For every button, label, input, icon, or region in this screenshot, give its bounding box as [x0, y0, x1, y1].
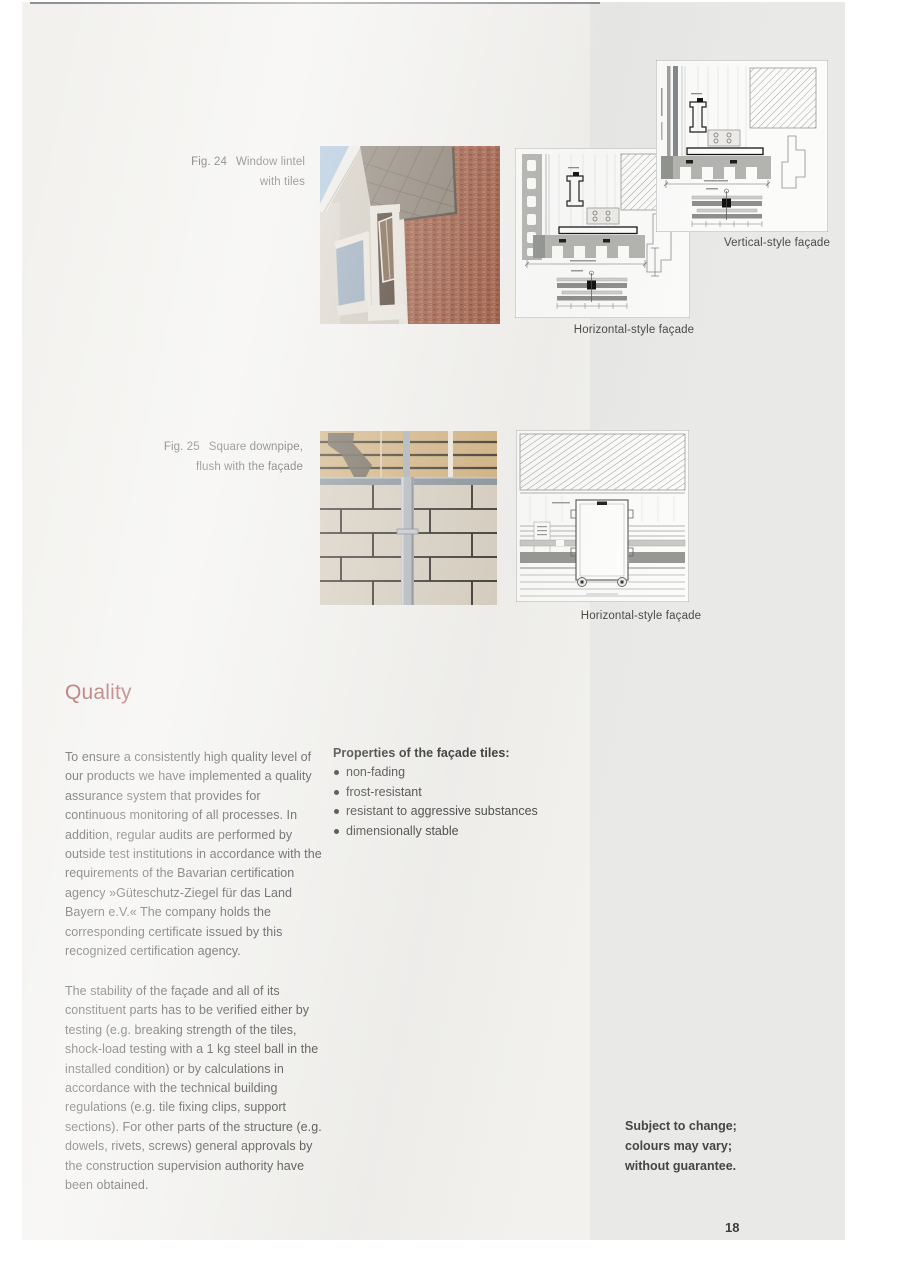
property-label: frost-resistant: [346, 785, 422, 799]
disclaimer-line1: Subject to change;: [625, 1116, 737, 1136]
fig24-caption: Fig. 24Window lintel with tiles: [142, 152, 305, 192]
list-item: non-fading: [333, 763, 573, 782]
fig24-caption-line2: with tiles: [260, 176, 305, 188]
quality-paragraph-2: The stability of the façade and all of i…: [65, 982, 325, 1195]
fig24-caption-line1: Window lintel: [236, 156, 305, 168]
scanned-brochure-page: Fig. 24Window lintel with tiles: [22, 2, 845, 1240]
page-number: 18: [725, 1220, 765, 1235]
square-downpipe-photo-graphic: [320, 431, 497, 605]
property-label: resistant to aggressive substances: [346, 804, 538, 818]
vertical-facade-caption: Vertical-style façade: [656, 237, 830, 249]
properties-list: non-fading frost-resistant resistant to …: [333, 763, 573, 841]
property-label: non-fading: [346, 765, 405, 779]
window-lintel-photo-graphic: [320, 146, 500, 324]
cad-drawing-horizontal-bottom: [516, 430, 689, 602]
list-item: frost-resistant: [333, 783, 573, 802]
cad-drawing-vertical: [656, 60, 828, 232]
scan-edge-artifact: [30, 2, 600, 4]
disclaimer-line2: colours may vary;: [625, 1136, 737, 1156]
fig25-photo: [320, 431, 497, 605]
fig24-photo: [320, 146, 500, 324]
horizontal-facade-bottom-caption: Horizontal-style façade: [541, 610, 741, 622]
quality-section-heading: Quality: [65, 681, 132, 705]
bullet-icon: [334, 809, 339, 814]
fig25-number: Fig. 25: [164, 441, 200, 453]
horizontal-facade-top-caption: Horizontal-style façade: [534, 324, 734, 336]
bullet-icon: [334, 829, 339, 834]
properties-panel: Properties of the façade tiles: non-fadi…: [333, 744, 573, 841]
bullet-icon: [334, 790, 339, 795]
quality-paragraph-1: To ensure a consistently high quality le…: [65, 748, 325, 961]
fig25-caption-line1: Square downpipe,: [209, 441, 303, 453]
fig25-caption-line2: flush with the façade: [196, 461, 303, 473]
bullet-icon: [334, 770, 339, 775]
disclaimer-note: Subject to change; colours may vary; wit…: [625, 1116, 737, 1176]
disclaimer-line3: without guarantee.: [625, 1156, 737, 1176]
fig24-number: Fig. 24: [191, 156, 227, 168]
properties-heading: Properties of the façade tiles:: [333, 744, 573, 763]
horizontal-facade-detail-bottom: [516, 430, 689, 602]
list-item: resistant to aggressive substances: [333, 802, 573, 821]
fig25-caption: Fig. 25Square downpipe, flush with the f…: [132, 437, 303, 477]
list-item: dimensionally stable: [333, 822, 573, 841]
property-label: dimensionally stable: [346, 824, 459, 838]
vertical-facade-detail: [656, 60, 828, 232]
